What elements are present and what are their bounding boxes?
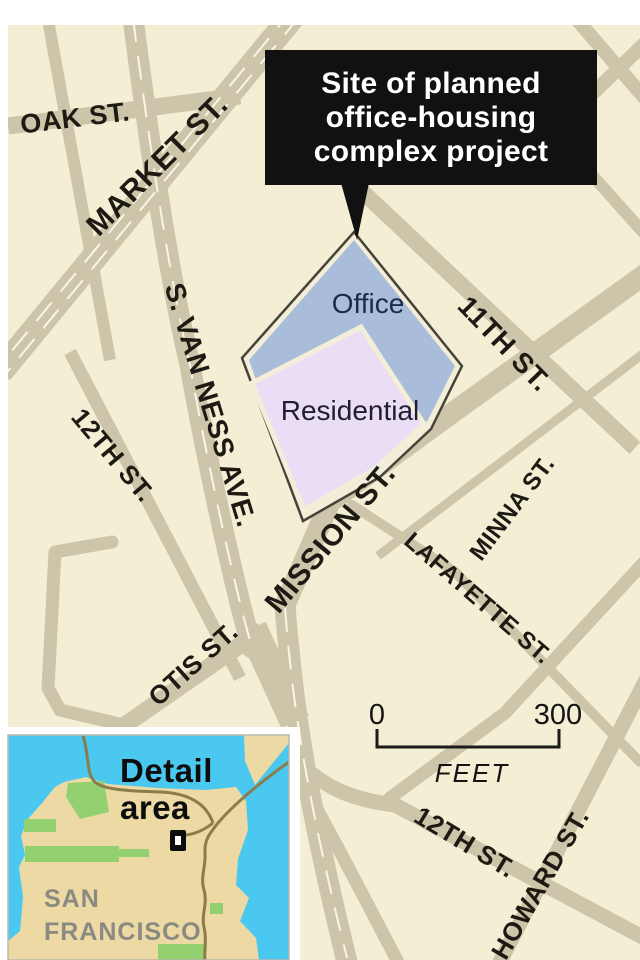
- callout-line-2: office-housing: [326, 101, 537, 134]
- scale-end-label: 300: [534, 699, 582, 731]
- inset-park-golden-gate: [25, 846, 119, 862]
- inset-park-2: [24, 819, 56, 832]
- inset-park-panhandle: [119, 849, 149, 857]
- inset-park-small: [210, 903, 223, 914]
- scale-start-label: 0: [369, 699, 385, 731]
- inset-city-line-2: FRANCISCO: [44, 918, 202, 946]
- residential-label: Residential: [281, 395, 420, 426]
- scale-unit-label: FEET: [435, 758, 510, 788]
- office-label: Office: [332, 288, 405, 319]
- map-svg: Office Residential OAK ST. MARKET ST. S.…: [0, 0, 640, 960]
- detail-area-marker-icon: [170, 830, 186, 851]
- inset-city-line-1: SAN: [44, 885, 100, 913]
- callout-line-3: complex project: [314, 135, 549, 168]
- callout-line-1: Site of planned: [321, 67, 541, 100]
- inset-map: Detail area SAN FRANCISCO: [0, 727, 300, 960]
- inset-title-line-1: Detail: [120, 752, 213, 789]
- locator-map: Office Residential OAK ST. MARKET ST. S.…: [0, 0, 640, 960]
- inset-park-bottom: [158, 944, 206, 960]
- inset-title-line-2: area: [120, 789, 190, 826]
